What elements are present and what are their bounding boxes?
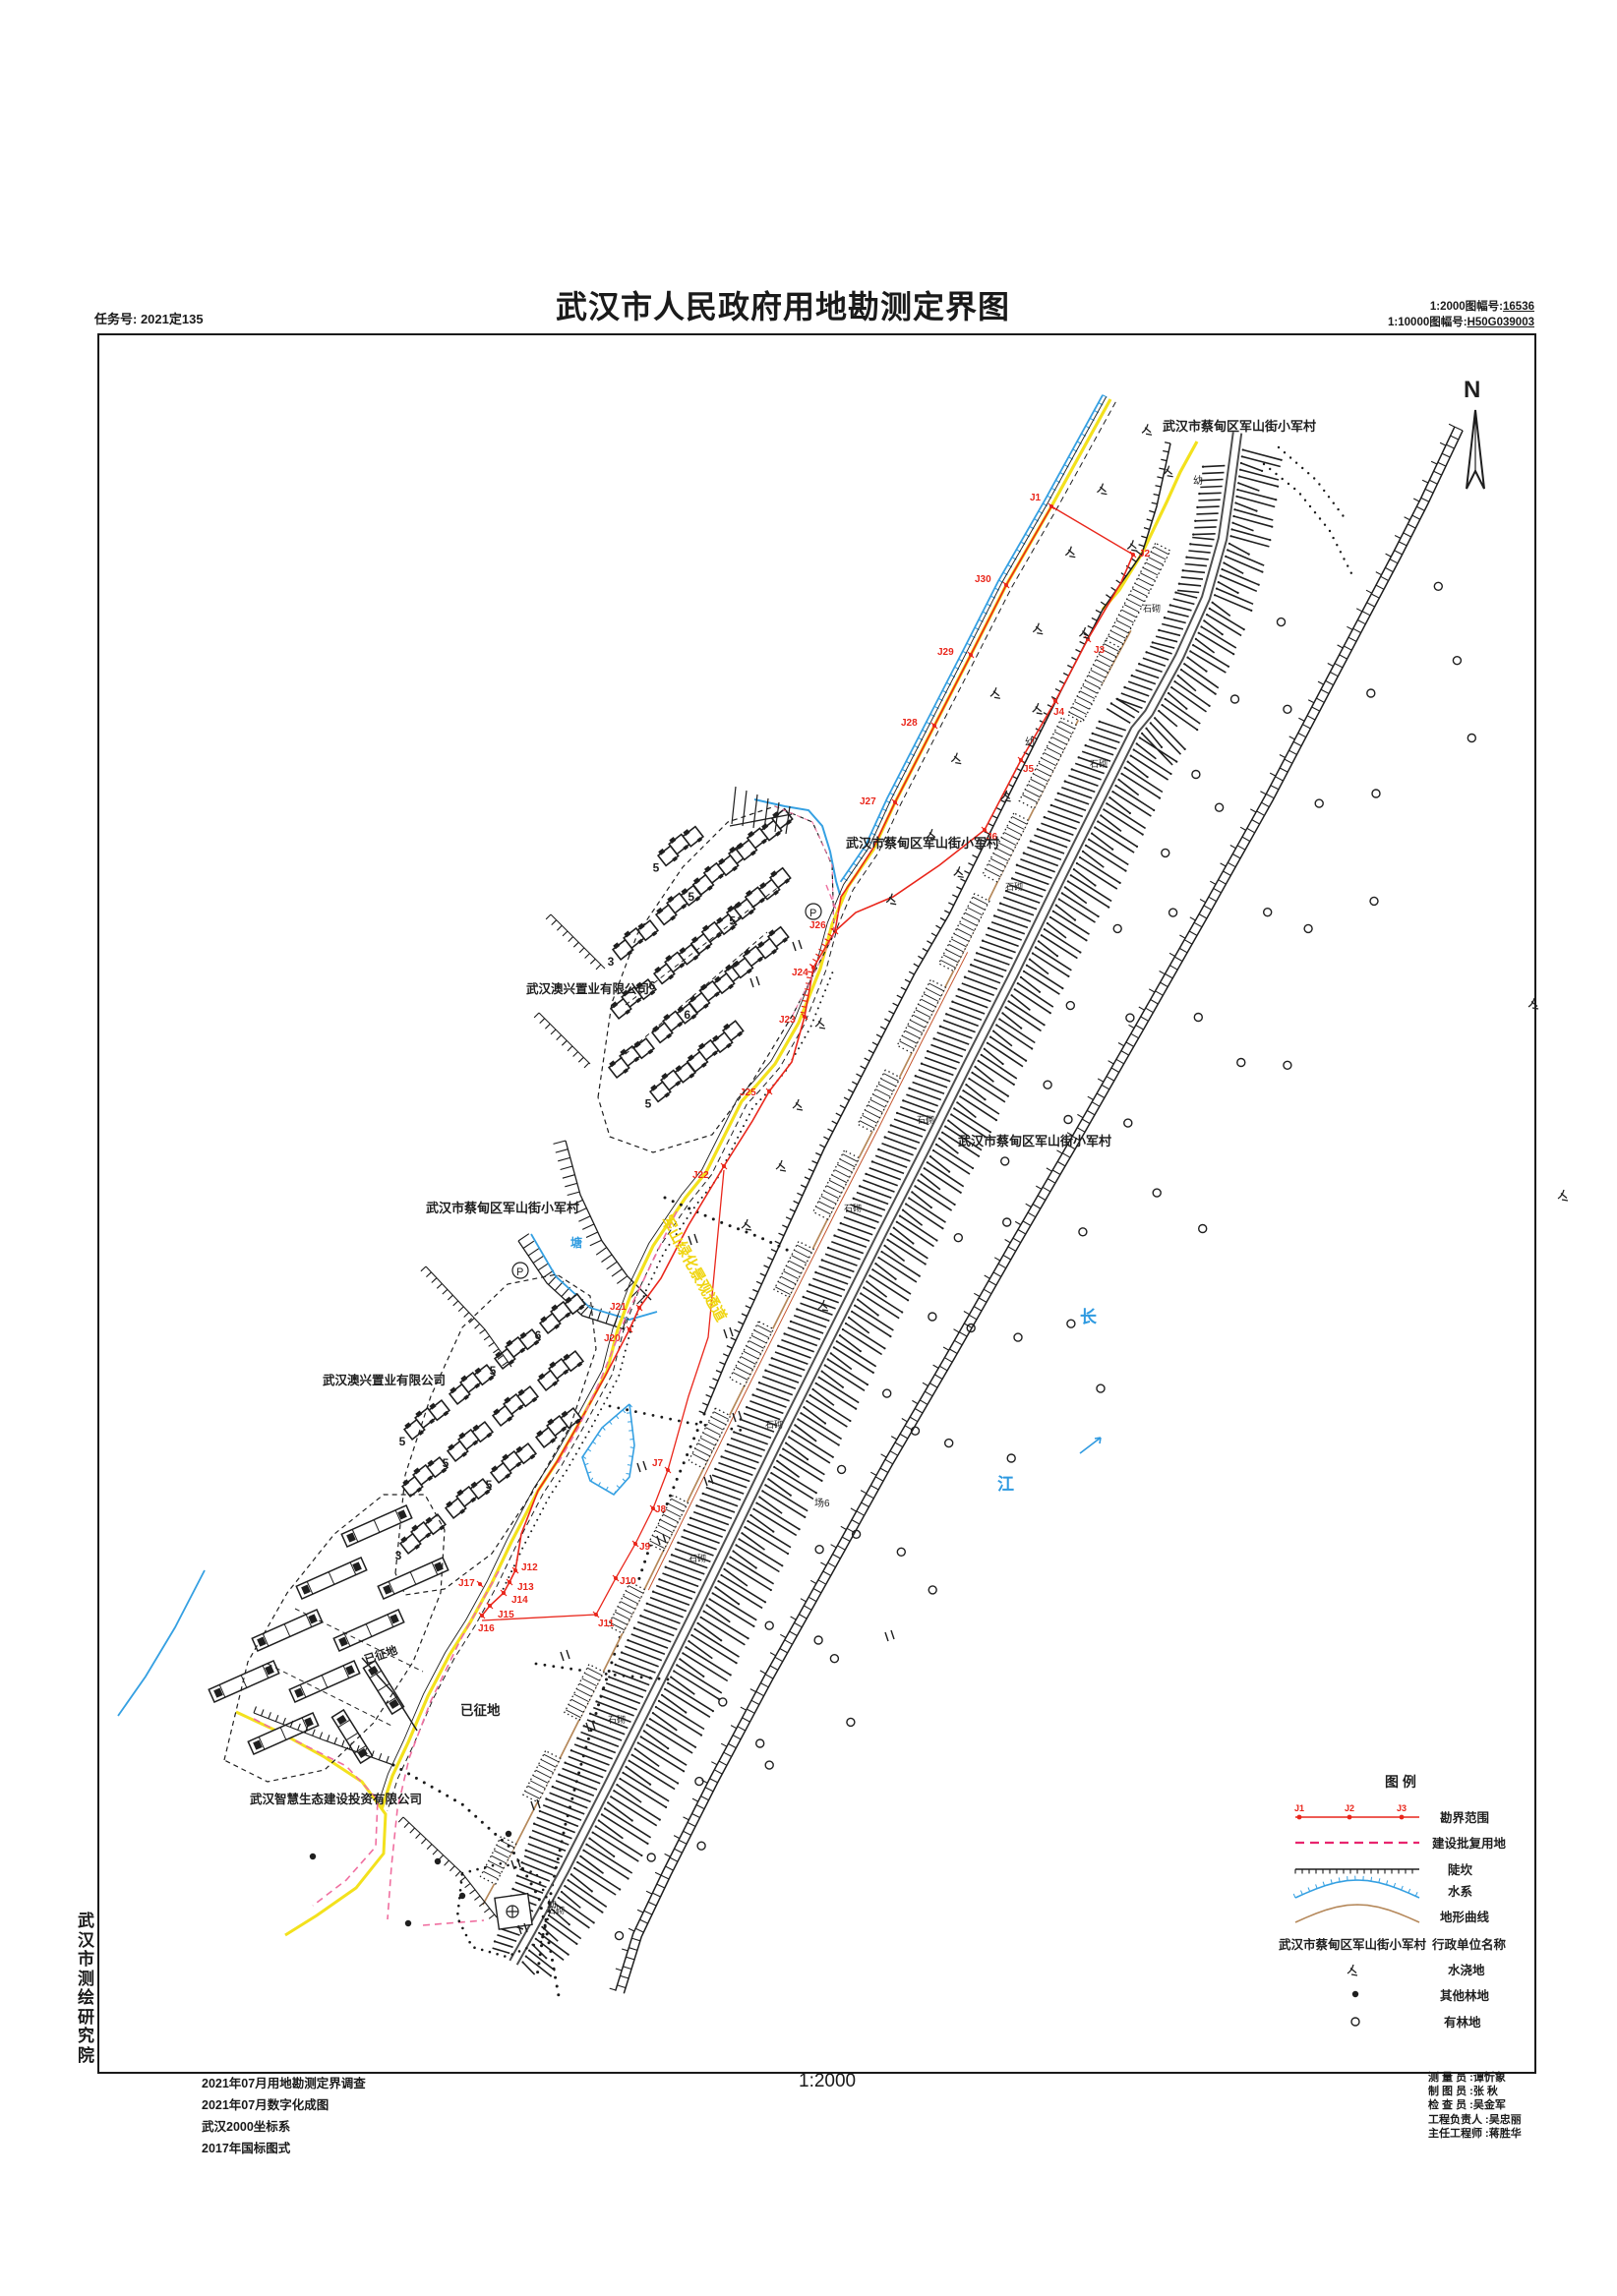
svg-text:N: N	[1464, 377, 1480, 403]
svg-text:江: 江	[997, 1475, 1014, 1494]
svg-text:5: 5	[729, 914, 736, 928]
svg-text:J15: J15	[498, 1610, 514, 1620]
svg-text:J21: J21	[610, 1302, 627, 1313]
svg-text:J13: J13	[517, 1582, 534, 1593]
svg-text:武汉市蔡甸区军山街小军村: 武汉市蔡甸区军山街小军村	[1279, 1937, 1427, 1952]
svg-text:其他林地: 其他林地	[1440, 1988, 1490, 2003]
svg-text:建设批复用地: 建设批复用地	[1432, 1836, 1507, 1851]
svg-text:幼: 幼	[1193, 474, 1203, 487]
svg-text:J1: J1	[1030, 493, 1042, 503]
svg-text:J16: J16	[478, 1623, 495, 1634]
svg-text:3: 3	[395, 1549, 402, 1562]
svg-text:场6: 场6	[814, 1497, 830, 1509]
svg-text:J22: J22	[692, 1170, 709, 1181]
svg-text:武汉市蔡甸区军山街小军村: 武汉市蔡甸区军山街小军村	[846, 836, 999, 851]
svg-text:J17: J17	[458, 1578, 475, 1589]
svg-text:石砌: 石砌	[1005, 882, 1023, 892]
svg-text:石砌: 石砌	[844, 1204, 862, 1213]
svg-text:幼: 幼	[1025, 736, 1035, 748]
svg-text:J20: J20	[604, 1333, 621, 1344]
svg-text:J25: J25	[740, 1088, 756, 1098]
svg-text:J8: J8	[655, 1504, 667, 1515]
svg-text:6: 6	[684, 1008, 690, 1022]
svg-text:武汉智慧生态建设投资有限公司: 武汉智慧生态建设投资有限公司	[250, 1792, 422, 1806]
svg-text:5: 5	[645, 1097, 652, 1111]
svg-text:3: 3	[608, 955, 615, 969]
svg-text:长: 长	[1080, 1307, 1098, 1326]
svg-text:J10: J10	[620, 1576, 636, 1587]
svg-text:石砌: 石砌	[917, 1115, 934, 1125]
svg-text:石砌: 石砌	[689, 1554, 706, 1563]
svg-text:5: 5	[653, 861, 660, 875]
svg-text:行政单位名称: 行政单位名称	[1431, 1937, 1507, 1952]
svg-text:5: 5	[399, 1435, 406, 1448]
svg-text:J28: J28	[901, 718, 918, 729]
svg-text:已征地: 已征地	[363, 1643, 400, 1667]
svg-text:J2: J2	[1139, 549, 1151, 559]
svg-text:J14: J14	[511, 1595, 528, 1606]
svg-text:P: P	[809, 908, 816, 919]
svg-text:J1: J1	[1294, 1803, 1304, 1813]
svg-text:J12: J12	[521, 1562, 538, 1573]
svg-text:有林地: 有林地	[1444, 2015, 1481, 2030]
svg-text:武汉市蔡甸区军山街小军村: 武汉市蔡甸区军山街小军村	[426, 1201, 579, 1215]
svg-text:J3: J3	[1094, 645, 1106, 656]
svg-text:石砌: 石砌	[1090, 759, 1108, 769]
svg-text:J3: J3	[1397, 1803, 1407, 1813]
svg-text:5: 5	[490, 1364, 497, 1378]
svg-text:J5: J5	[1023, 764, 1035, 775]
svg-text:P: P	[516, 1266, 523, 1278]
svg-text:5: 5	[688, 890, 694, 904]
svg-text:已征地: 已征地	[460, 1702, 501, 1718]
svg-text:5: 5	[486, 1478, 493, 1492]
svg-text:J11: J11	[598, 1619, 615, 1629]
svg-text:J7: J7	[652, 1458, 664, 1469]
svg-text:军山绿化景观通道: 军山绿化景观通道	[658, 1212, 731, 1325]
svg-text:J30: J30	[975, 574, 991, 585]
svg-text:武汉澳兴置业有限公司: 武汉澳兴置业有限公司	[526, 981, 649, 996]
svg-text:地形曲线: 地形曲线	[1440, 1910, 1490, 1924]
svg-text:陡坎: 陡坎	[1448, 1862, 1473, 1877]
svg-text:J4: J4	[1053, 707, 1065, 718]
svg-text:6: 6	[535, 1328, 542, 1342]
svg-text:J29: J29	[937, 647, 954, 658]
svg-text:武汉市蔡甸区军山街小军村: 武汉市蔡甸区军山街小军村	[958, 1134, 1111, 1148]
svg-text:石砌: 石砌	[608, 1715, 626, 1725]
svg-text:石砌: 石砌	[765, 1420, 783, 1430]
svg-text:J9: J9	[639, 1542, 651, 1553]
svg-text:J27: J27	[860, 796, 876, 807]
svg-text:图 例: 图 例	[1385, 1774, 1416, 1790]
svg-text:塘: 塘	[570, 1235, 582, 1250]
svg-text:武汉澳兴置业有限公司: 武汉澳兴置业有限公司	[323, 1373, 446, 1387]
svg-text:J2: J2	[1345, 1803, 1354, 1813]
svg-text:幼: 幼	[547, 1898, 557, 1911]
svg-text:武汉市蔡甸区军山街小军村: 武汉市蔡甸区军山街小军村	[1163, 419, 1316, 434]
svg-text:J26: J26	[809, 920, 826, 931]
svg-text:J24: J24	[792, 968, 808, 978]
svg-text:水浇地: 水浇地	[1448, 1963, 1485, 1977]
svg-text:5: 5	[443, 1456, 449, 1470]
svg-text:石砌: 石砌	[1143, 604, 1161, 614]
svg-text:水系: 水系	[1448, 1884, 1473, 1899]
svg-text:勘界范围: 勘界范围	[1440, 1810, 1489, 1825]
